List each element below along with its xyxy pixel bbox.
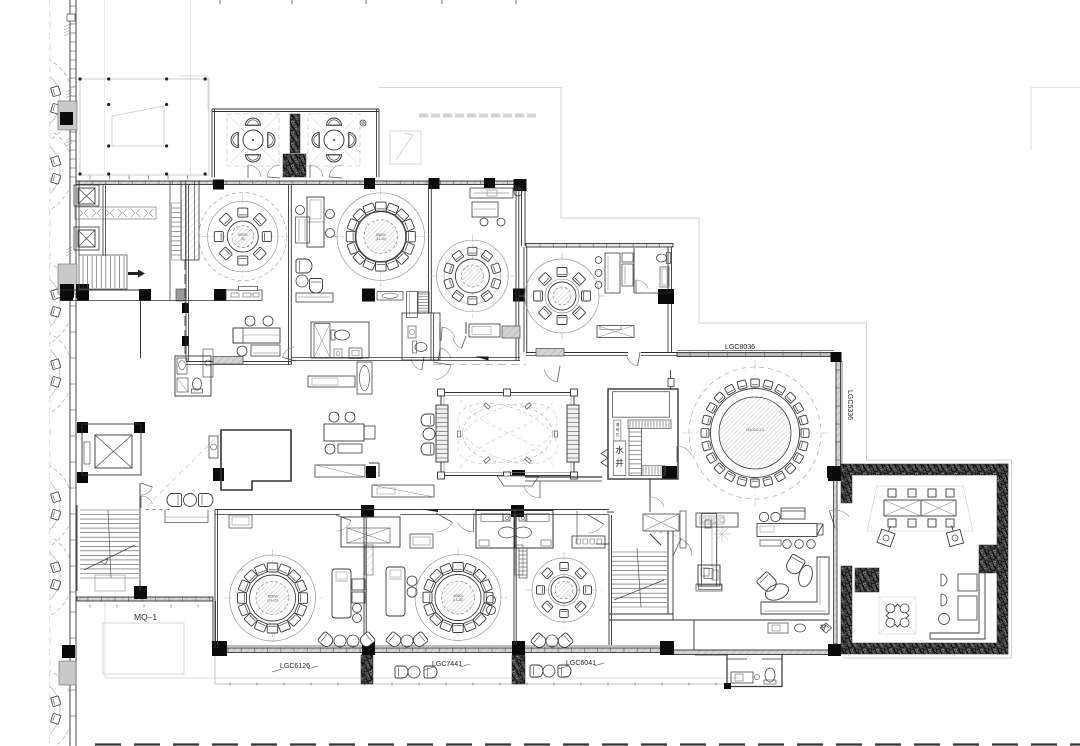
svg-text:(14-16): (14-16) [376,237,386,241]
svg-text:(14-16): (14-16) [453,598,463,602]
svg-text:水: 水 [615,445,624,455]
svg-text:LGC6041: LGC6041 [566,660,596,667]
svg-text:LGC5336: LGC5336 [846,390,853,420]
svg-text:(8): (8) [241,237,245,241]
svg-text:(14-16): (14-16) [267,599,277,603]
svg-text:清: 清 [616,422,620,427]
svg-text:明: 明 [616,428,620,432]
svg-text:LGC6126: LGC6126 [280,663,310,670]
svg-text:件: 件 [616,432,620,437]
svg-text:Ø4000-24: Ø4000-24 [746,427,765,432]
svg-text:井: 井 [615,458,624,468]
svg-text:MQ–1: MQ–1 [134,612,157,622]
svg-text:LGC7441: LGC7441 [432,661,462,668]
svg-text:LGC8036: LGC8036 [725,344,755,351]
